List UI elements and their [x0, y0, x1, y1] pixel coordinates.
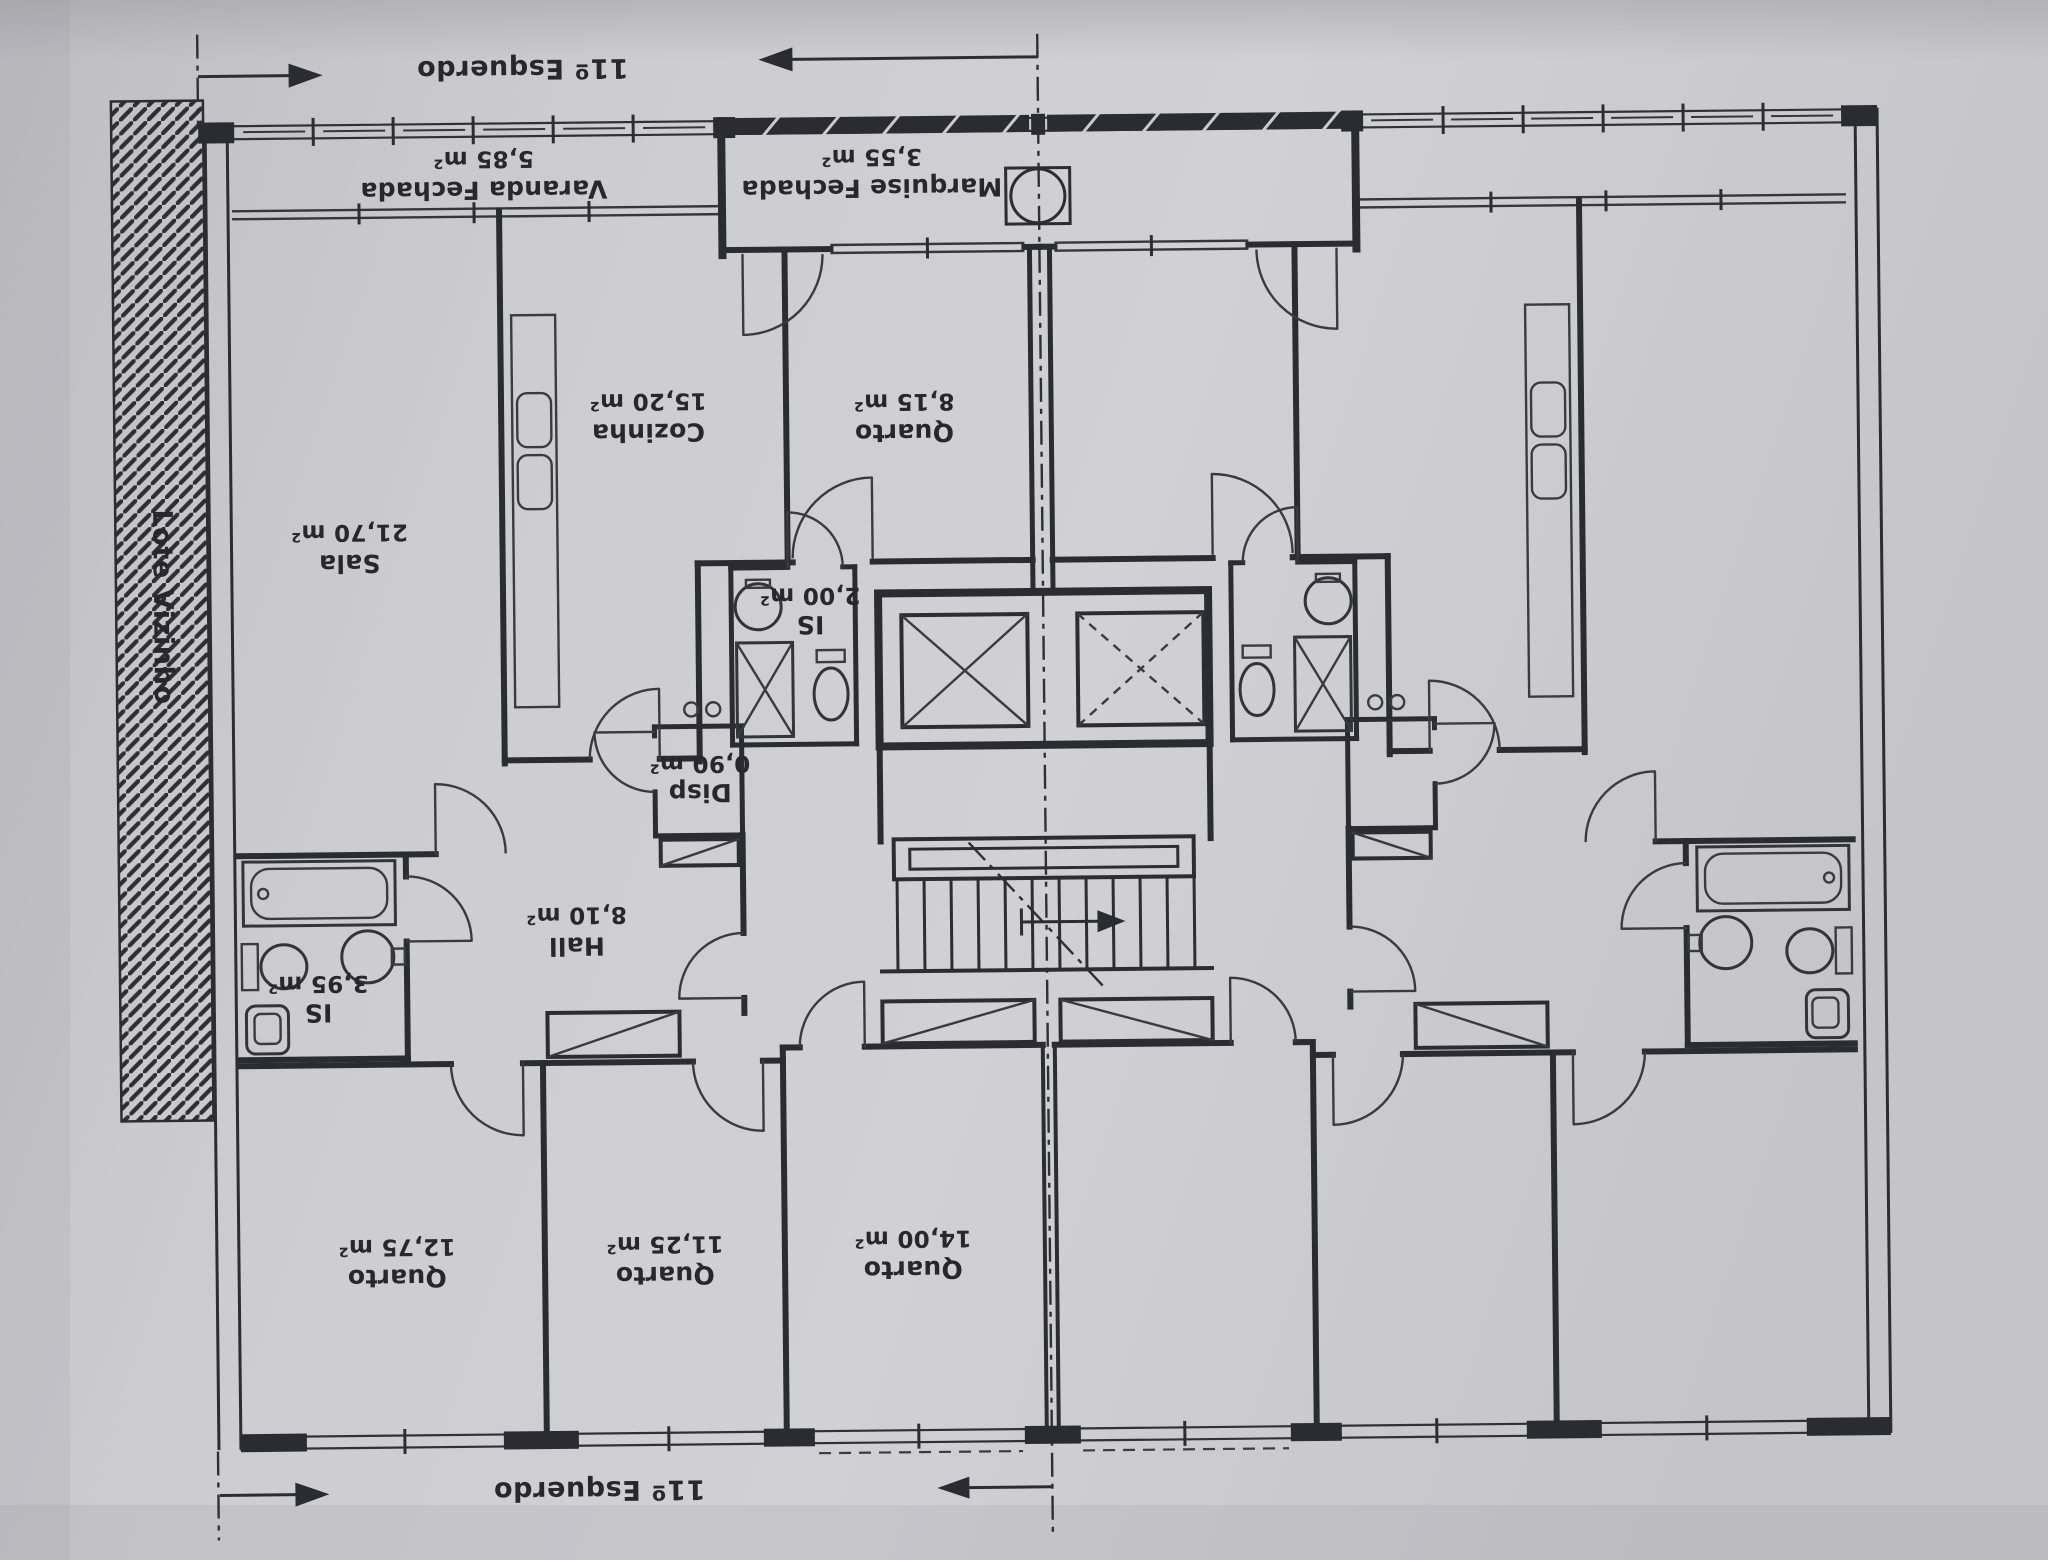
unit-label-top: 11º Esquerdo: [416, 52, 628, 85]
paper-background: [0, 0, 2048, 1560]
svg-text:Quarto: Quarto: [347, 1263, 446, 1293]
svg-text:Quarto: Quarto: [855, 418, 954, 448]
unit-label-bottom: 11º Esquerdo: [493, 1473, 705, 1506]
svg-text:Quarto: Quarto: [615, 1260, 714, 1290]
photo-shadow-bottom: [0, 1505, 2048, 1560]
arrow-top-left-shaft: [200, 76, 289, 77]
svg-text:8,15 m²: 8,15 m²: [853, 388, 954, 415]
svg-text:2,00 m²: 2,00 m²: [759, 582, 860, 609]
floorplan-svg: Lote Vizinho: [0, 0, 2048, 1560]
svg-text:Sala: Sala: [319, 549, 381, 579]
svg-text:Cozinha: Cozinha: [592, 417, 706, 447]
lot-line-top: [197, 35, 198, 127]
svg-text:IS: IS: [796, 610, 824, 639]
svg-text:5,85 m²: 5,85 m²: [433, 145, 534, 172]
svg-text:11,25 m²: 11,25 m²: [606, 1230, 723, 1257]
photo-shadow-left: [0, 0, 70, 1560]
neighbor-lot-band: Lote Vizinho: [111, 101, 214, 1122]
floorplan-photo: Lote Vizinho: [0, 0, 2048, 1560]
svg-text:11º Esquerdo: 11º Esquerdo: [493, 1473, 705, 1506]
arrow-bottom-left-shaft: [221, 1495, 295, 1496]
svg-text:Disp: Disp: [668, 778, 732, 808]
svg-text:3,95 m²: 3,95 m²: [268, 970, 369, 997]
photo-shadow-top: [0, 0, 2048, 60]
svg-text:14,00 m²: 14,00 m²: [854, 1225, 971, 1252]
svg-text:IS: IS: [304, 998, 332, 1027]
svg-text:3,55 m²: 3,55 m²: [821, 143, 922, 170]
svg-text:12,75 m²: 12,75 m²: [338, 1233, 455, 1260]
svg-text:Quarto: Quarto: [863, 1255, 962, 1285]
svg-text:15,20 m²: 15,20 m²: [589, 387, 706, 414]
svg-text:0,90 m²: 0,90 m²: [649, 750, 750, 777]
svg-text:Varanda Fechada: Varanda Fechada: [360, 174, 607, 206]
lot-line-bottom: [218, 1451, 219, 1540]
lote-vizinho-text: Lote Vizinho: [146, 509, 179, 705]
svg-text:Marquise Fechada: Marquise Fechada: [741, 172, 1002, 204]
neighbor-lot-label: Lote Vizinho: [146, 509, 179, 705]
svg-text:11º Esquerdo: 11º Esquerdo: [416, 52, 628, 85]
stair-arrow-shaft: [1021, 921, 1097, 922]
svg-text:21,70 m²: 21,70 m²: [291, 518, 408, 545]
arrow-bottom-center-shaft: [969, 1487, 1051, 1488]
svg-text:Hall: Hall: [548, 931, 604, 961]
svg-text:8,10 m²: 8,10 m²: [526, 901, 627, 928]
